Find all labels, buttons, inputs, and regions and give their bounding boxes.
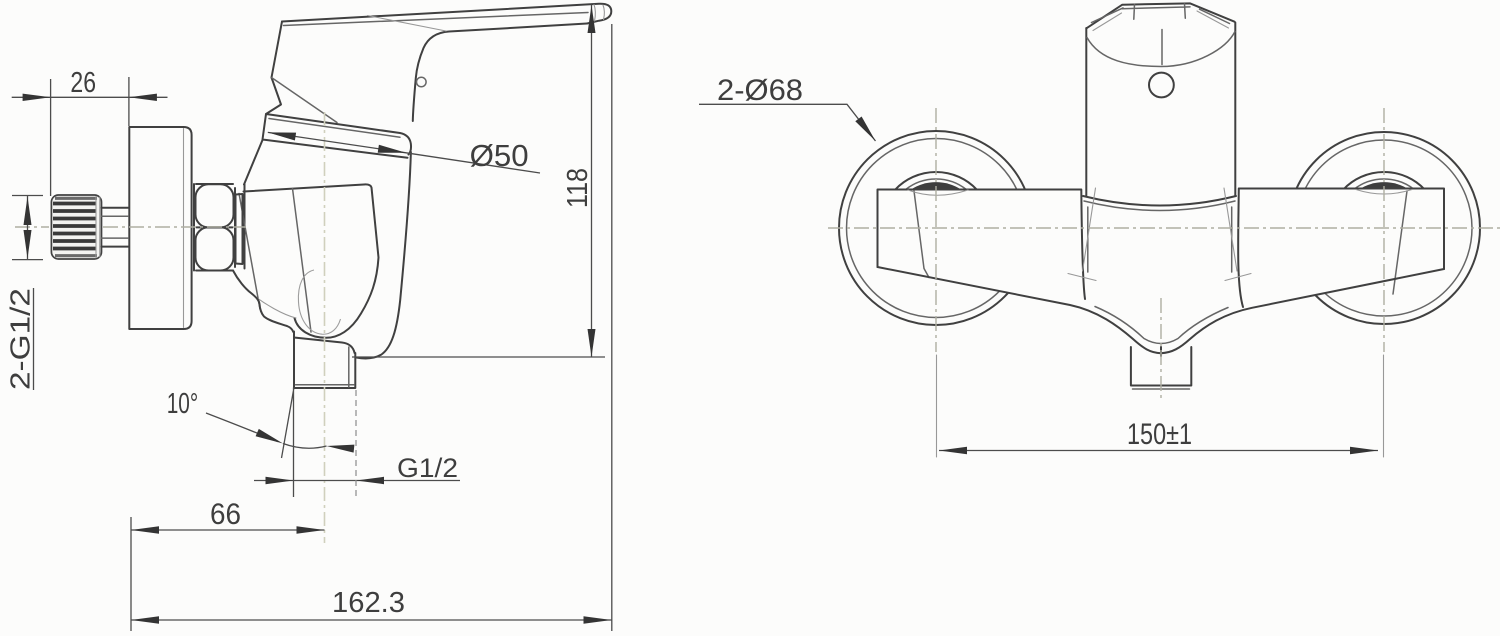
svg-text:66: 66	[210, 498, 241, 531]
svg-text:G1/2: G1/2	[397, 453, 458, 483]
svg-text:26: 26	[70, 67, 96, 99]
svg-text:10°: 10°	[167, 388, 199, 420]
svg-text:2-Ø68: 2-Ø68	[717, 74, 803, 107]
svg-text:162.3: 162.3	[332, 587, 405, 619]
svg-text:Ø50: Ø50	[470, 138, 529, 173]
svg-text:150±1: 150±1	[1127, 418, 1192, 451]
svg-text:118: 118	[562, 168, 594, 208]
svg-text:2-G1/2: 2-G1/2	[5, 288, 36, 390]
